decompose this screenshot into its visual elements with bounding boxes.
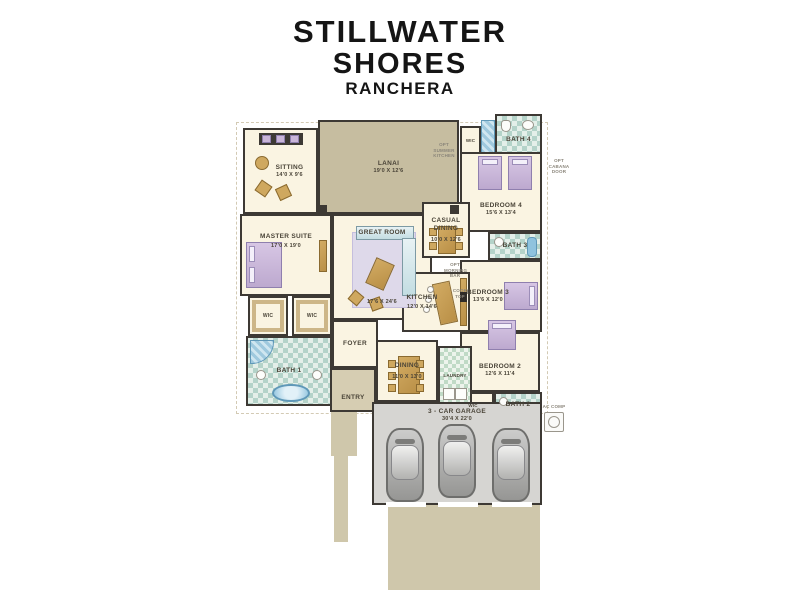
sink-icon <box>256 370 266 380</box>
sitting-dims: 14'0 X 9'6 <box>276 172 303 178</box>
ottoman-icon <box>255 156 269 170</box>
opt-cabana-door-note: OPT CABANA DOOR <box>548 158 570 175</box>
room-wic-hall: WIC <box>460 126 481 154</box>
wic-label: WIC <box>468 403 477 408</box>
room-bedroom2: BEDROOM 2 12'6 X 11'4 <box>460 332 540 392</box>
dining-dims: 11'0 X 13'0 <box>392 374 422 380</box>
lanai-label: LANAI <box>378 160 399 168</box>
bed-icon <box>508 156 532 190</box>
garage-door-opening <box>386 502 426 507</box>
cook-top-note: COOK TOP <box>452 288 468 299</box>
bath1-label: BATH 1 <box>277 367 302 375</box>
tub-icon <box>527 237 537 257</box>
stool-icon <box>427 286 434 293</box>
room-foyer: FOYER <box>332 320 378 368</box>
casual-dining-dims: 10'0 X 12'6 <box>431 237 461 243</box>
toilet-icon <box>501 120 511 132</box>
car-icon <box>386 428 424 502</box>
bed-icon <box>478 156 502 190</box>
wic-label: WIC <box>466 138 475 143</box>
driveway <box>388 504 540 590</box>
room-lanai: LANAI 19'0 X 12'6 <box>318 120 459 214</box>
sitting-label: SITTING <box>276 164 304 172</box>
car-icon <box>492 428 530 502</box>
sink-icon <box>312 370 322 380</box>
wic-label: WIC <box>307 313 317 319</box>
shower-icon <box>481 120 495 154</box>
room-bath1: BATH 1 <box>246 336 332 406</box>
opt-summer-kitchen-note: OPT SUMMER KITCHEN <box>432 142 456 159</box>
room-master-suite: MASTER SUITE 17'0 X 19'0 <box>240 214 332 296</box>
lanai-dims: 19'0 X 12'6 <box>374 168 404 174</box>
foyer-label: FOYER <box>343 340 367 348</box>
walkway-path <box>334 454 348 542</box>
great-room-dims: 17'6 X 24'6 <box>367 299 397 305</box>
laundry-label: LAUNDRY <box>443 373 466 378</box>
ac-compressor-icon <box>544 412 564 432</box>
sink-icon <box>522 120 534 130</box>
garage-label: 3 - CAR GARAGE <box>428 408 486 416</box>
chair-icon <box>416 384 424 392</box>
room-bedroom4: BEDROOM 4 15'6 X 13'4 <box>460 152 542 232</box>
entry-walkway <box>331 410 357 456</box>
room-entry: ENTRY <box>330 368 376 412</box>
master-suite-label: MASTER SUITE <box>260 233 312 241</box>
floorplan-drawing: LANAI 19'0 X 12'6 OPT SUMMER KITCHEN SIT… <box>0 0 800 600</box>
bedroom3-dims: 13'6 X 12'0 <box>473 297 503 303</box>
bath3-label: BATH 3 <box>503 242 528 250</box>
room-bath3: BATH 3 <box>488 232 542 260</box>
dresser-icon <box>319 240 327 272</box>
chair-icon <box>275 184 292 201</box>
floorplan-page: STILLWATER SHORES RANCHERA LANAI 19'0 X … <box>0 0 800 600</box>
master-suite-dims: 17'0 X 19'0 <box>271 243 301 249</box>
shower-icon <box>250 340 274 364</box>
lanai-post <box>450 205 459 214</box>
room-dining: DINING 11'0 X 13'0 <box>376 340 438 402</box>
room-casual-dining: CASUAL DINING 10'0 X 12'6 <box>422 202 470 258</box>
sectional-sofa-icon <box>402 238 416 296</box>
entry-label: ENTRY <box>341 394 364 402</box>
chair-icon <box>254 179 272 197</box>
bath2-label: BATH 2 <box>506 401 531 409</box>
kitchen-label: KITCHEN <box>407 294 438 302</box>
bedroom4-dims: 15'6 X 13'4 <box>486 210 516 216</box>
bedroom4-label: BEDROOM 4 <box>480 202 522 210</box>
great-room-label: GREAT ROOM <box>358 229 405 237</box>
ac-comp-label: AC COMP <box>540 404 568 410</box>
car-icon <box>438 424 476 498</box>
room-laundry: LAUNDRY <box>438 346 472 404</box>
counter-icon <box>460 278 467 326</box>
bed-icon <box>488 320 516 350</box>
tub-icon <box>272 384 310 402</box>
washer-icon <box>443 388 455 400</box>
garage-door-opening <box>438 502 478 507</box>
room-wic-master2: WIC <box>292 296 332 336</box>
kitchen-dims: 12'0 X 14'6 <box>407 304 437 310</box>
dryer-icon <box>455 388 467 400</box>
opt-morning-bar-note: OPT MORNING BAR <box>444 262 466 279</box>
bed-icon <box>504 282 538 310</box>
lanai-post <box>318 205 327 214</box>
wic-label: WIC <box>263 313 273 319</box>
room-bath4: BATH 4 <box>495 114 542 154</box>
bedroom3-label: BEDROOM 3 <box>467 289 509 297</box>
room-wic-master1: WIC <box>248 296 288 336</box>
window-seat-icon <box>259 133 303 145</box>
room-sitting: SITTING 14'0 X 9'6 <box>243 128 318 214</box>
bedroom2-dims: 12'6 X 11'4 <box>485 371 515 377</box>
casual-dining-label: CASUAL DINING <box>424 217 468 234</box>
bedroom2-label: BEDROOM 2 <box>479 363 521 371</box>
room-garage: 3 - CAR GARAGE 30'4 X 22'0 <box>372 402 542 505</box>
garage-dims: 30'4 X 22'0 <box>442 416 472 422</box>
bath4-label: BATH 4 <box>506 136 531 144</box>
garage-door-opening <box>492 502 532 507</box>
chair-icon <box>388 384 396 392</box>
dining-label: DINING <box>395 362 420 370</box>
